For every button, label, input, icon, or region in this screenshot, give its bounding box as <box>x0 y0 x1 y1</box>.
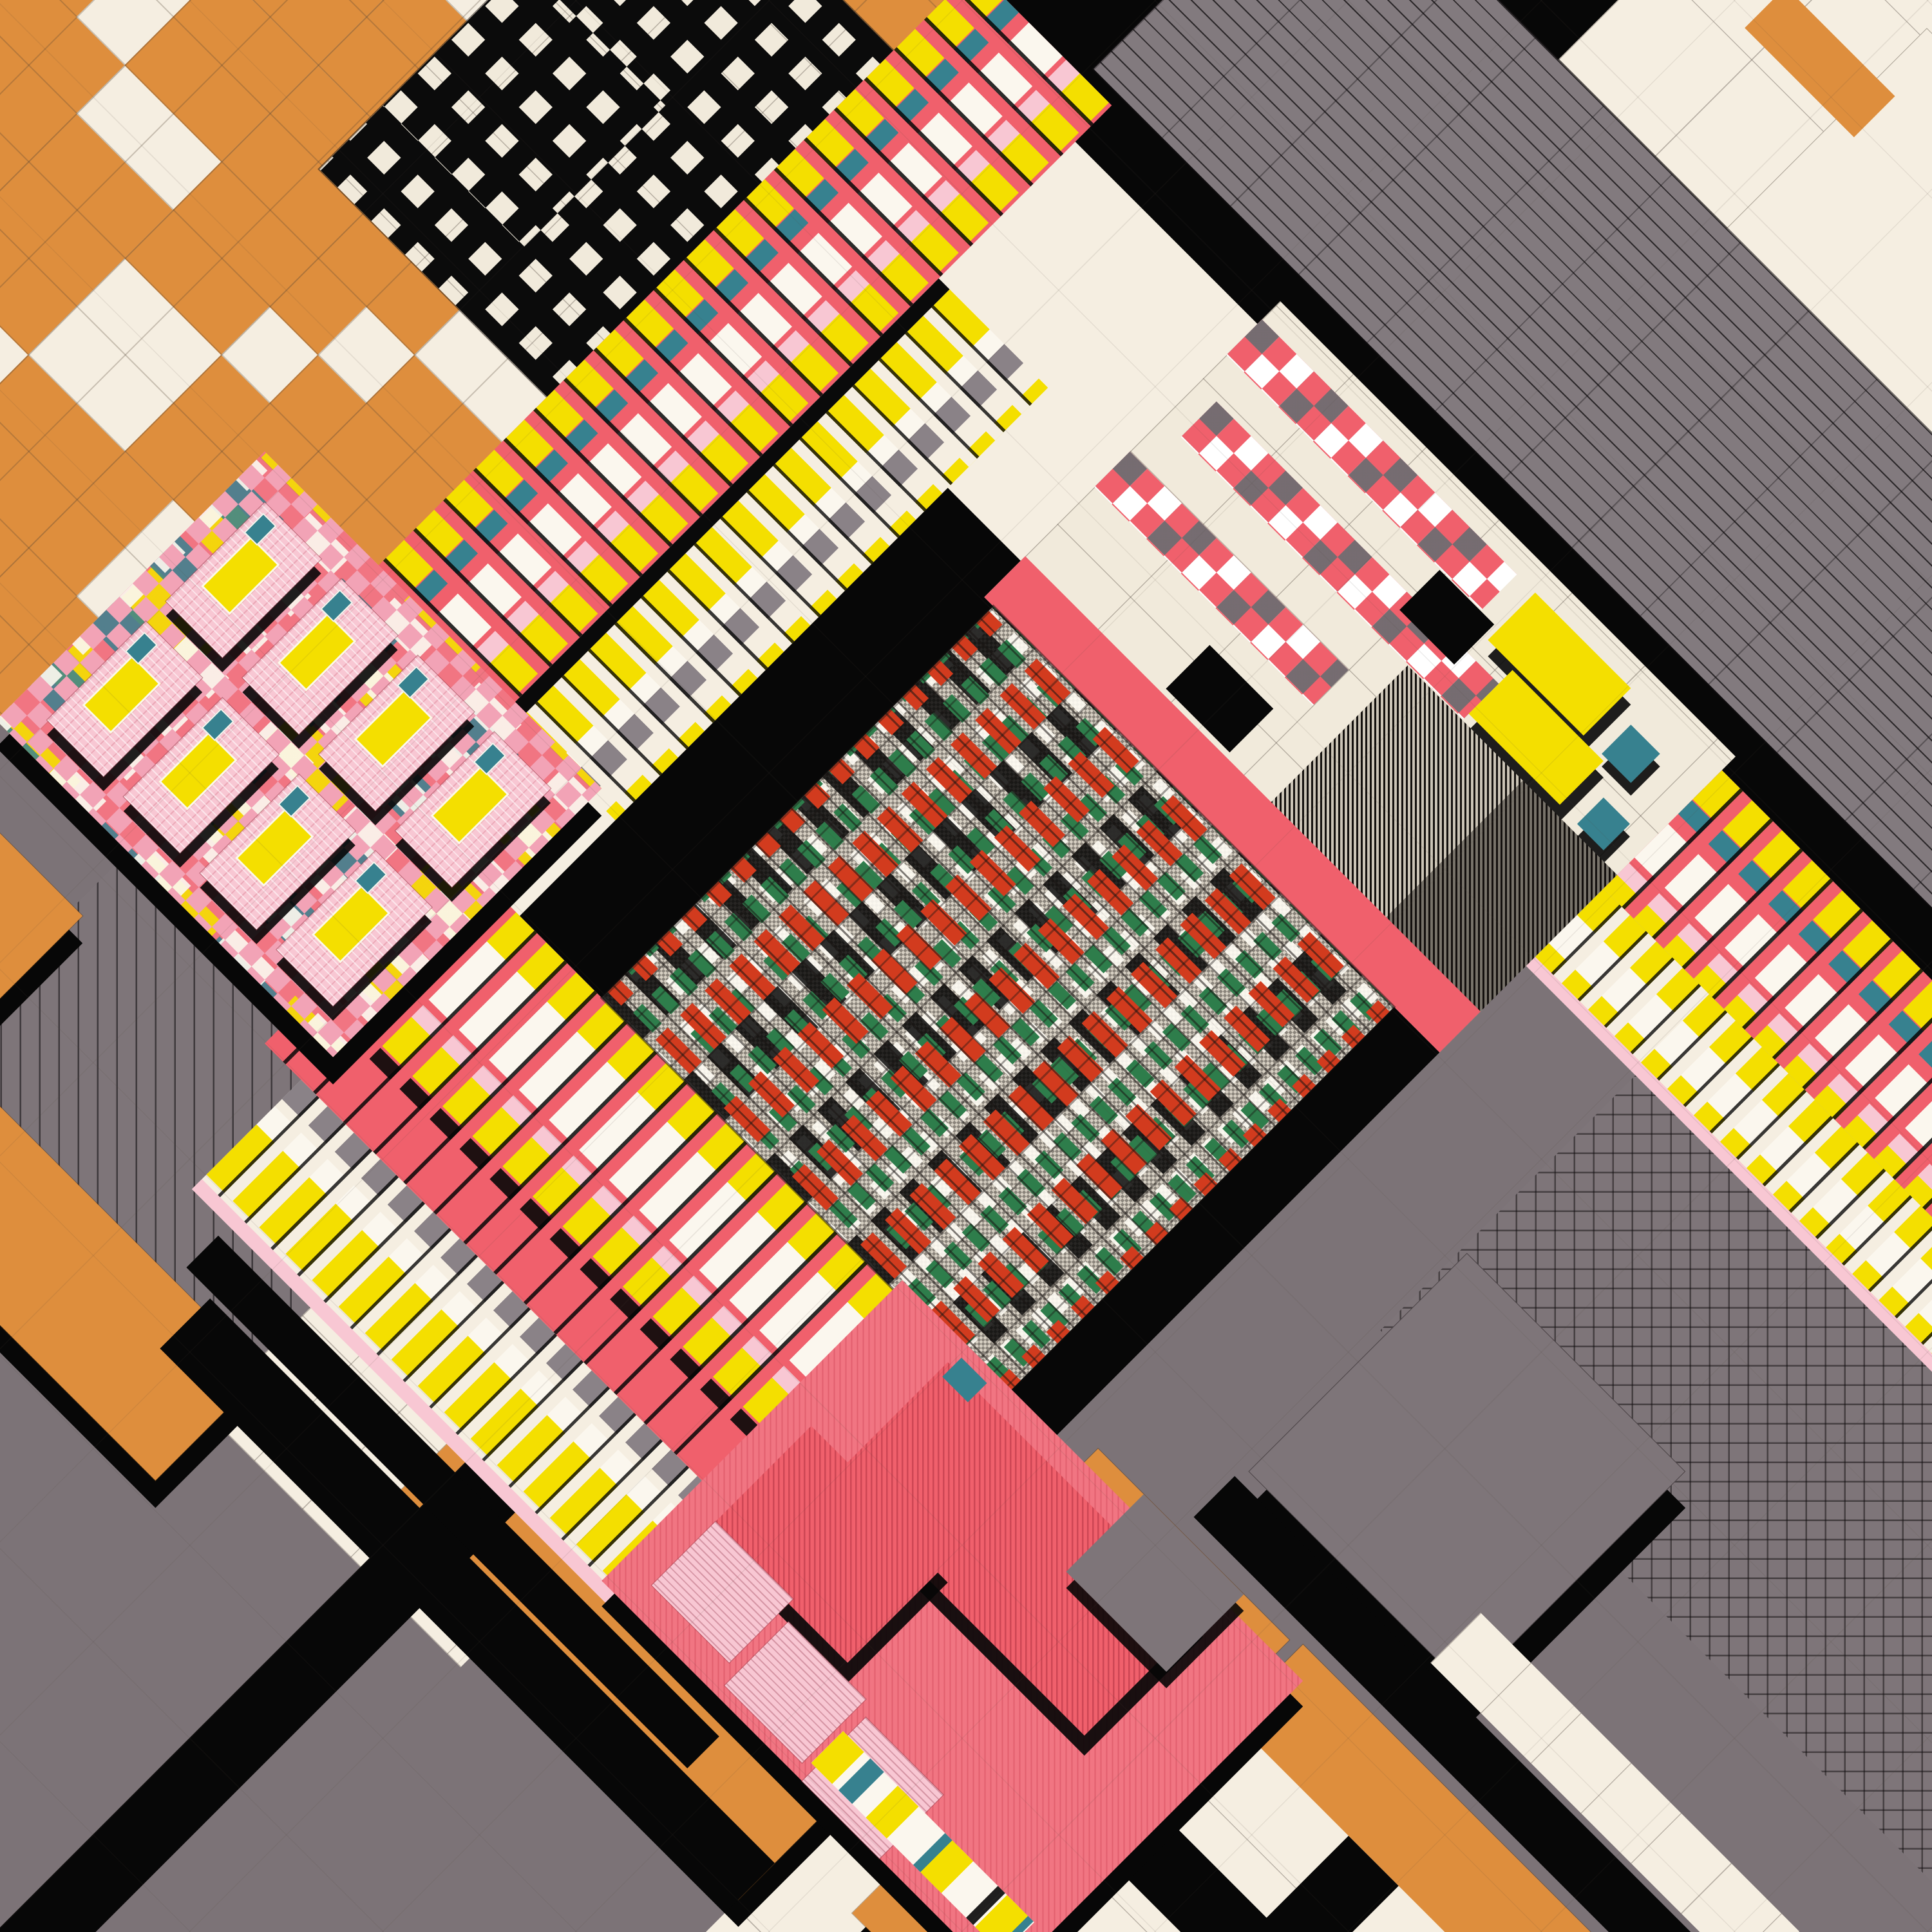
teal-chip <box>1602 724 1660 783</box>
orange-bar <box>1745 0 1895 137</box>
generative-city-artwork <box>0 0 1932 1932</box>
rotated-city-grid <box>0 0 1932 1932</box>
